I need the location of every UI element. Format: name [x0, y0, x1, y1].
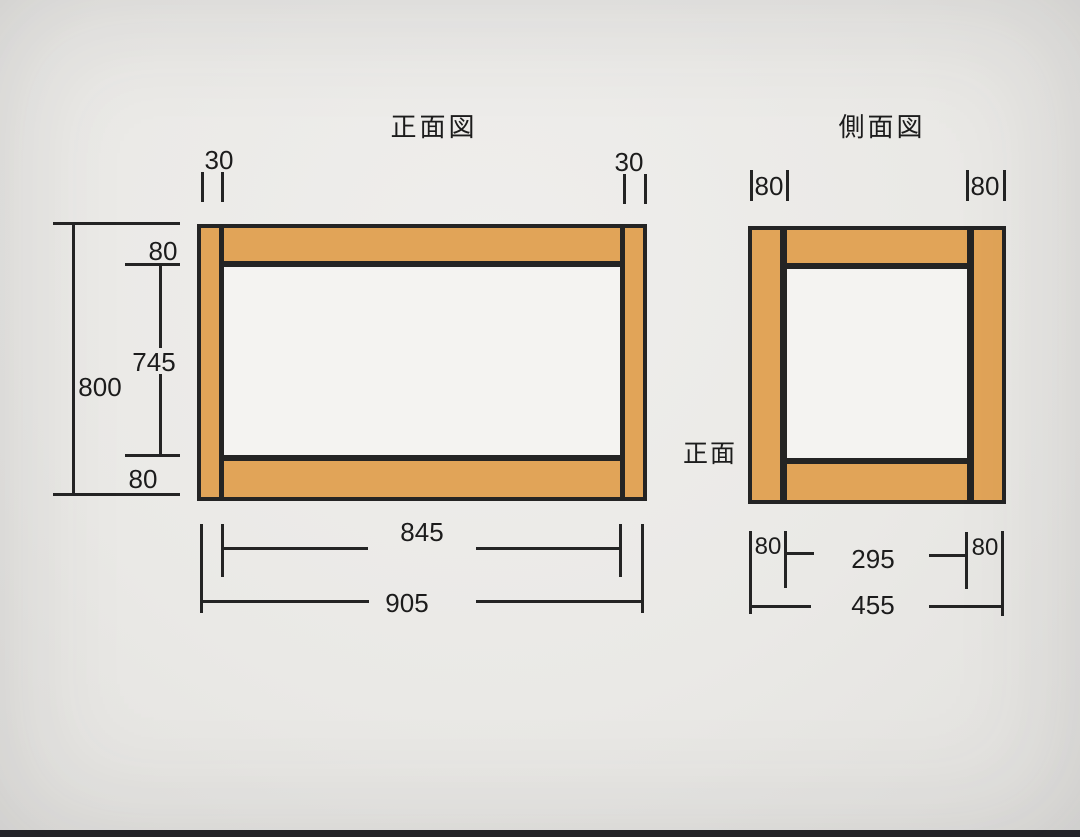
dim-label-top-rail: 80 — [141, 238, 185, 265]
side-bottom-rail — [787, 458, 967, 500]
front-view-title: 正面図 — [334, 114, 534, 141]
dim-line-opening-height — [159, 266, 162, 348]
dim-label-side-leg-left-bottom: 80 — [749, 534, 787, 559]
dim-label-opening-depth: 295 — [842, 546, 904, 573]
dim-tick — [1001, 531, 1004, 616]
dim-line-opening-width — [476, 547, 621, 550]
dim-label-opening-height: 745 — [127, 349, 181, 376]
dim-label-side-leg-left-top: 80 — [749, 173, 789, 200]
front-left-leg — [201, 228, 224, 497]
dim-line-opening-height — [159, 374, 162, 455]
dim-label-front-leg-left: 30 — [197, 147, 241, 174]
dim-tick — [1003, 170, 1006, 201]
side-right-leg — [967, 230, 1002, 500]
front-center-column — [224, 228, 620, 497]
dim-line-opening-depth — [929, 554, 967, 557]
side-opening — [787, 269, 967, 458]
dim-line-overall-height — [72, 222, 75, 496]
front-opening — [224, 267, 620, 455]
dim-tick — [221, 172, 224, 202]
dim-label-overall-depth: 455 — [842, 592, 904, 619]
front-bottom-rail — [224, 455, 620, 497]
dim-line-overall-width — [476, 600, 643, 603]
dim-label-overall-height: 800 — [76, 374, 124, 401]
dim-tick — [786, 170, 789, 201]
dim-tick — [221, 524, 224, 577]
dim-line-overall-depth — [751, 605, 811, 608]
dim-tick — [619, 524, 622, 577]
dim-label-side-leg-right-top: 80 — [965, 173, 1005, 200]
dim-label-side-leg-right-bottom: 80 — [966, 535, 1004, 560]
dim-label-bottom-rail: 80 — [121, 466, 165, 493]
dim-tick — [201, 172, 204, 202]
drawing-sheet: 正面図 30 30 800 80 745 80 845 905 側面図 — [0, 0, 1080, 837]
dim-tick — [623, 174, 626, 204]
dim-tick — [644, 174, 647, 204]
dim-line-overall-depth — [929, 605, 1003, 608]
dim-line-opening-depth — [787, 552, 814, 555]
dim-tick-line — [125, 454, 180, 457]
side-top-rail — [787, 230, 967, 269]
dim-tick-line — [125, 263, 180, 266]
dim-tick — [784, 531, 787, 588]
side-center-column — [787, 230, 967, 500]
photo-bottom-edge — [0, 830, 1080, 837]
dim-label-overall-width: 905 — [376, 590, 438, 617]
side-view-title: 側面図 — [782, 114, 982, 141]
side-left-leg — [752, 230, 787, 500]
dim-label-opening-width: 845 — [391, 519, 453, 546]
side-view-frame — [748, 226, 1006, 504]
front-right-leg — [620, 228, 643, 497]
dim-line-opening-width — [224, 547, 368, 550]
dim-label-front-leg-right: 30 — [607, 149, 651, 176]
front-view-frame — [197, 224, 647, 501]
dim-line-overall-width — [203, 600, 369, 603]
side-view-front-direction-label: 正面 — [672, 441, 748, 467]
front-top-rail — [224, 228, 620, 267]
